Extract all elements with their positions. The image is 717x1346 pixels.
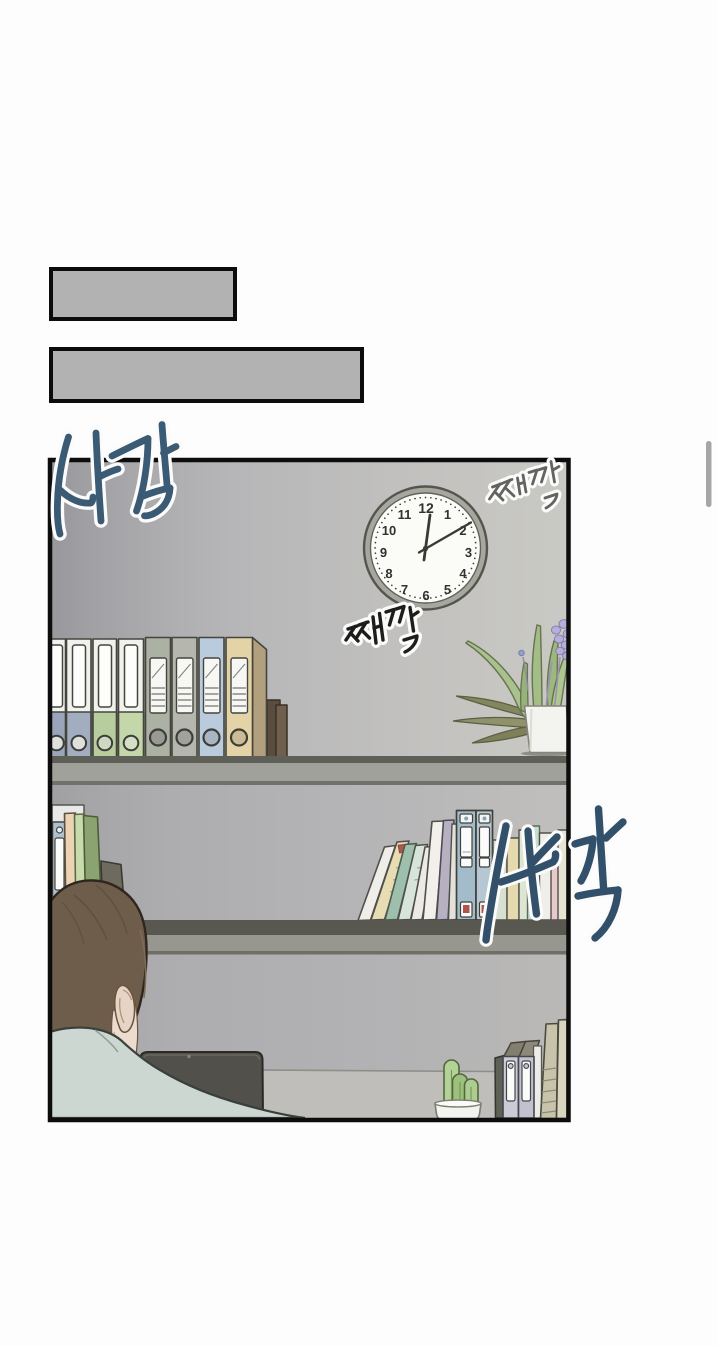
svg-text:10: 10 [382, 523, 396, 538]
svg-text:9: 9 [380, 545, 387, 560]
svg-text:1: 1 [444, 507, 451, 522]
svg-text:4: 4 [459, 566, 467, 581]
svg-text:6: 6 [422, 588, 429, 603]
svg-text:11: 11 [398, 507, 412, 522]
svg-text:8: 8 [385, 566, 392, 581]
svg-text:3: 3 [465, 545, 472, 560]
svg-text:12: 12 [418, 500, 434, 516]
svg-text:5: 5 [444, 582, 451, 597]
svg-text:7: 7 [401, 582, 408, 597]
